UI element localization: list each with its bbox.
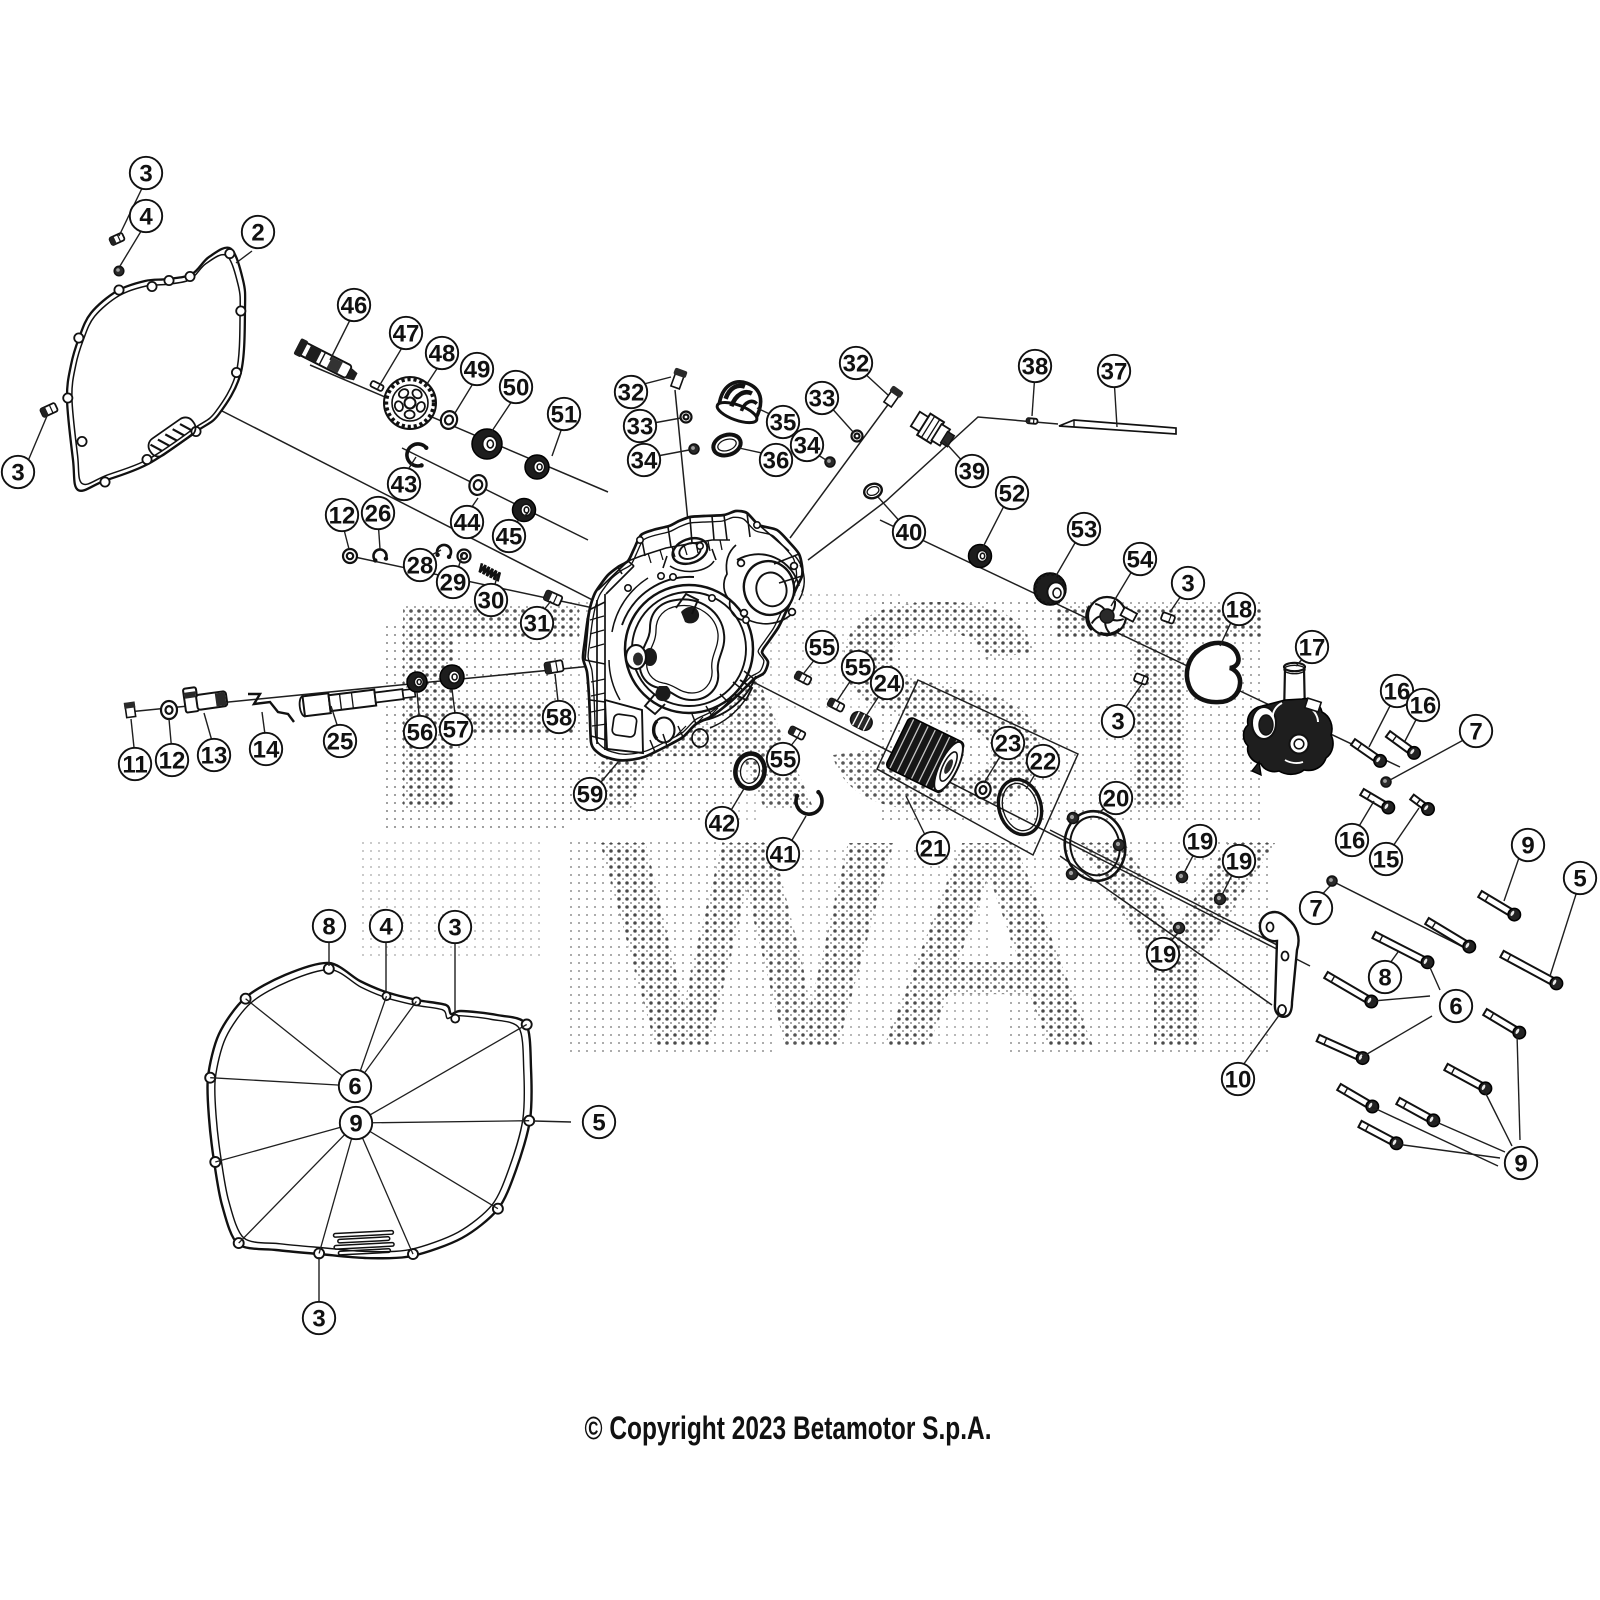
svg-text:26: 26 (365, 501, 392, 528)
svg-text:5: 5 (592, 1110, 605, 1137)
svg-text:32: 32 (618, 380, 645, 407)
svg-text:37: 37 (1101, 359, 1128, 386)
svg-text:3: 3 (448, 915, 461, 942)
svg-text:7: 7 (1309, 896, 1322, 923)
svg-text:40: 40 (896, 520, 923, 547)
svg-text:8: 8 (1378, 965, 1391, 992)
svg-text:4: 4 (139, 204, 153, 231)
svg-text:45: 45 (496, 524, 523, 551)
svg-text:55: 55 (845, 655, 872, 682)
svg-text:9: 9 (349, 1111, 362, 1138)
svg-text:5: 5 (1573, 866, 1586, 893)
svg-text:4: 4 (379, 914, 393, 941)
svg-text:55: 55 (770, 747, 797, 774)
svg-text:3: 3 (312, 1306, 325, 1333)
svg-text:16: 16 (1410, 693, 1437, 720)
svg-text:32: 32 (843, 351, 870, 378)
svg-text:3: 3 (11, 460, 24, 487)
svg-text:53: 53 (1071, 517, 1098, 544)
svg-text:38: 38 (1022, 354, 1049, 381)
svg-text:WAY: WAY (600, 779, 1280, 1109)
svg-text:3: 3 (139, 161, 152, 188)
svg-text:18: 18 (1226, 597, 1253, 624)
svg-text:23: 23 (995, 731, 1022, 758)
svg-text:28: 28 (407, 553, 434, 580)
svg-text:16: 16 (1339, 828, 1366, 855)
svg-text:13: 13 (201, 743, 228, 770)
svg-text:44: 44 (454, 510, 481, 537)
svg-text:9: 9 (1521, 833, 1534, 860)
svg-text:36: 36 (763, 448, 790, 475)
svg-text:50: 50 (503, 375, 530, 402)
svg-text:41: 41 (770, 842, 797, 869)
svg-text:7: 7 (1469, 719, 1482, 746)
svg-text:19: 19 (1226, 849, 1253, 876)
svg-text:6: 6 (348, 1074, 361, 1101)
svg-text:49: 49 (464, 357, 491, 384)
svg-text:21: 21 (920, 836, 947, 863)
svg-text:34: 34 (794, 433, 821, 460)
svg-text:3: 3 (1181, 571, 1194, 598)
svg-text:31: 31 (524, 611, 551, 638)
svg-text:30: 30 (478, 588, 505, 615)
svg-text:33: 33 (627, 414, 654, 441)
svg-text:17: 17 (1299, 635, 1326, 662)
svg-text:43: 43 (391, 472, 418, 499)
svg-text:12: 12 (329, 503, 356, 530)
svg-text:25: 25 (327, 729, 354, 756)
svg-text:56: 56 (407, 720, 434, 747)
svg-text:15: 15 (1373, 847, 1400, 874)
svg-text:11: 11 (122, 752, 147, 779)
svg-text:54: 54 (1127, 547, 1154, 574)
svg-text:14: 14 (253, 737, 280, 764)
svg-text:12: 12 (159, 748, 186, 775)
svg-text:10: 10 (1225, 1067, 1252, 1094)
svg-text:48: 48 (429, 341, 456, 368)
svg-text:51: 51 (551, 402, 578, 429)
svg-text:57: 57 (443, 717, 470, 744)
svg-text:2: 2 (251, 220, 264, 247)
svg-text:58: 58 (546, 705, 573, 732)
svg-text:55: 55 (809, 635, 836, 662)
svg-text:33: 33 (809, 386, 836, 413)
svg-text:19: 19 (1150, 942, 1177, 969)
svg-text:22: 22 (1030, 749, 1057, 776)
svg-text:35: 35 (770, 410, 797, 437)
svg-text:29: 29 (440, 570, 467, 597)
svg-text:9: 9 (1514, 1151, 1527, 1178)
svg-text:20: 20 (1103, 786, 1130, 813)
svg-text:39: 39 (959, 459, 986, 486)
svg-text:19: 19 (1187, 829, 1214, 856)
svg-text:59: 59 (577, 782, 604, 809)
svg-text:24: 24 (874, 671, 901, 698)
svg-text:© Copyright 2023 Betamotor S.p: © Copyright 2023 Betamotor S.p.A. (585, 1410, 992, 1446)
svg-text:6: 6 (1449, 994, 1462, 1021)
svg-text:52: 52 (999, 481, 1026, 508)
svg-text:8: 8 (322, 914, 335, 941)
svg-text:46: 46 (341, 293, 368, 320)
svg-text:47: 47 (393, 321, 420, 348)
svg-text:42: 42 (709, 811, 736, 838)
svg-text:3: 3 (1111, 709, 1124, 736)
svg-text:34: 34 (631, 448, 658, 475)
